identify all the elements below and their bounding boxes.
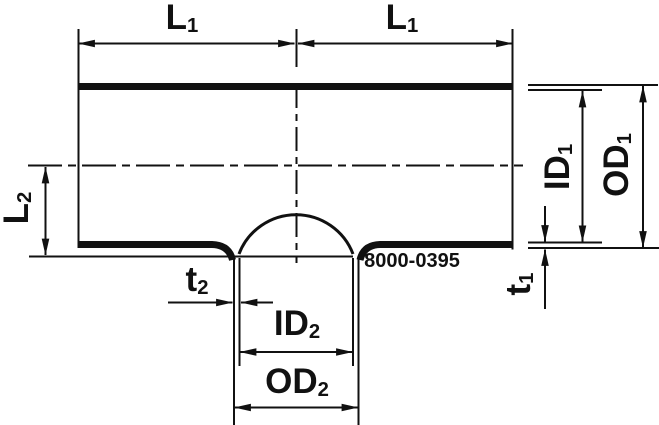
dim-label-id2-main: ID — [274, 304, 309, 343]
dim-label-id1-sub: 1 — [555, 144, 577, 155]
dim-label-t2-sub: 2 — [197, 277, 208, 299]
dim-label-id1-main: ID — [538, 155, 577, 190]
dim-label-l2: L2 — [0, 192, 35, 225]
dim-label-l1-left-main: L — [166, 0, 187, 37]
dim-label-od2-main: OD — [265, 362, 318, 401]
dim-label-id2-sub: 2 — [309, 321, 320, 343]
dim-label-l1-left: L1 — [166, 0, 199, 36]
dim-label-t1-sub: 1 — [516, 273, 538, 284]
dim-label-od1: OD1 — [599, 133, 635, 197]
tee-outline-svg — [0, 0, 659, 425]
dim-label-id2: ID2 — [274, 306, 320, 342]
run-pipe-bottom-wall-left — [78, 245, 233, 261]
dim-label-t1-main: t — [499, 284, 538, 296]
dim-label-l1-right-main: L — [386, 0, 407, 37]
dim-label-l2-sub: 2 — [14, 192, 36, 203]
dim-label-l1-right-sub: 1 — [407, 15, 418, 37]
dim-label-id1: ID1 — [540, 144, 576, 190]
part-number: 8000-0395 — [364, 251, 460, 271]
dim-label-od2: OD2 — [265, 364, 329, 400]
dim-label-t1: t1 — [501, 273, 537, 296]
dim-label-l1-right: L1 — [386, 0, 419, 36]
dim-label-t2-main: t — [186, 260, 198, 299]
dim-label-od2-sub: 2 — [318, 379, 329, 401]
dim-label-od1-sub: 1 — [614, 133, 636, 144]
tee-fitting-dimension-drawing: L1 L1 L2 ID1 OD1 t1 t2 ID2 OD2 8000-0395 — [0, 0, 659, 425]
dim-label-t2: t2 — [186, 262, 209, 298]
dim-label-l1-left-sub: 1 — [187, 15, 198, 37]
dim-label-l2-main: L — [0, 203, 36, 224]
dim-label-od1-main: OD — [597, 144, 636, 197]
